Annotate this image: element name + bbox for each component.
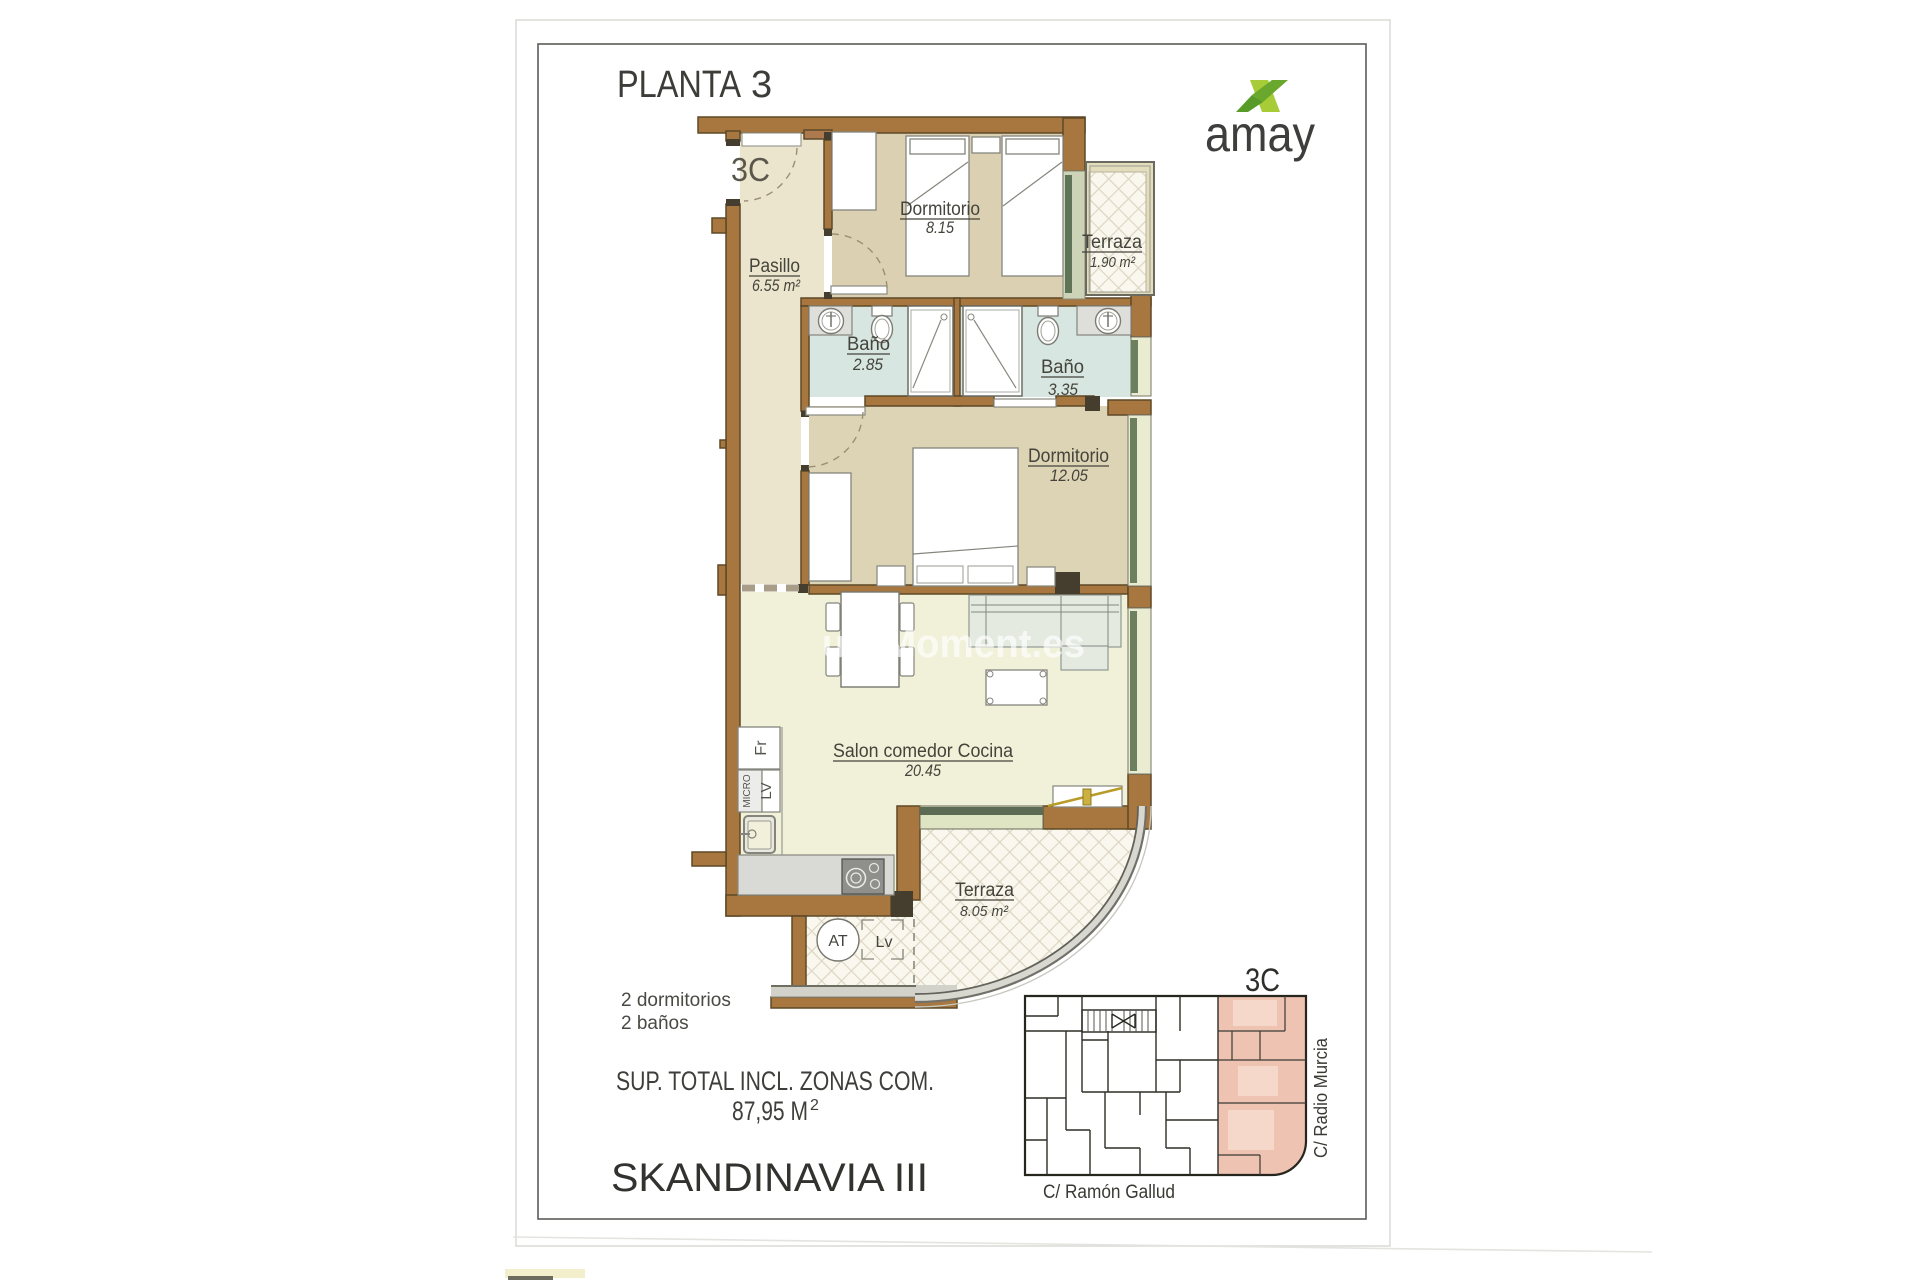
svg-text:2: 2: [810, 1097, 819, 1114]
svg-text:PLANTA: PLANTA: [617, 64, 742, 106]
svg-text:SUP. TOTAL INCL. ZONAS COM.: SUP. TOTAL INCL. ZONAS COM.: [616, 1066, 934, 1096]
svg-text:20.45: 20.45: [904, 761, 941, 780]
svg-text:Terraza: Terraza: [1082, 232, 1142, 253]
svg-text:3C: 3C: [1245, 962, 1280, 998]
svg-text:C/ Ramón Gallud: C/ Ramón Gallud: [1043, 1182, 1175, 1203]
svg-text:3: 3: [751, 64, 772, 106]
svg-text:amay: amay: [1205, 106, 1315, 162]
svg-text:3C: 3C: [731, 151, 770, 188]
svg-text:Fr: Fr: [753, 740, 770, 756]
svg-text:8.15: 8.15: [926, 218, 954, 237]
svg-text:SKANDINAVIA III: SKANDINAVIA III: [611, 1156, 928, 1200]
svg-text:Salon comedor Cocina: Salon comedor Cocina: [833, 741, 1013, 762]
svg-text:Dormitorio: Dormitorio: [1028, 446, 1109, 467]
svg-text:Baño: Baño: [847, 334, 890, 355]
svg-text:Dormitorio: Dormitorio: [900, 199, 980, 220]
svg-text:MICRO: MICRO: [742, 774, 753, 808]
svg-text:Lv: Lv: [876, 934, 893, 951]
svg-text:C/ Radio Murcia: C/ Radio Murcia: [1311, 1037, 1331, 1158]
svg-text:87,95 M: 87,95 M: [732, 1096, 808, 1126]
svg-text:8.05 m²: 8.05 m²: [960, 903, 1009, 920]
svg-text:AT: AT: [828, 933, 847, 950]
svg-text:6.55 m²: 6.55 m²: [752, 276, 801, 295]
svg-text:Pasillo: Pasillo: [749, 256, 800, 277]
svg-text:1.90 m²: 1.90 m²: [1090, 254, 1136, 271]
svg-text:Terraza: Terraza: [955, 880, 1014, 901]
svg-text:LV: LV: [758, 782, 775, 799]
svg-text:2.85: 2.85: [852, 355, 883, 374]
svg-text:3.35: 3.35: [1048, 380, 1078, 399]
svg-text:2 dormitorios: 2 dormitorios: [621, 990, 731, 1011]
svg-text:12.05: 12.05: [1050, 466, 1088, 485]
svg-text:2 baños: 2 baños: [621, 1013, 689, 1034]
svg-text:Baño: Baño: [1041, 357, 1084, 378]
svg-text:uroMoment.es: uroMoment.es: [822, 622, 1085, 666]
